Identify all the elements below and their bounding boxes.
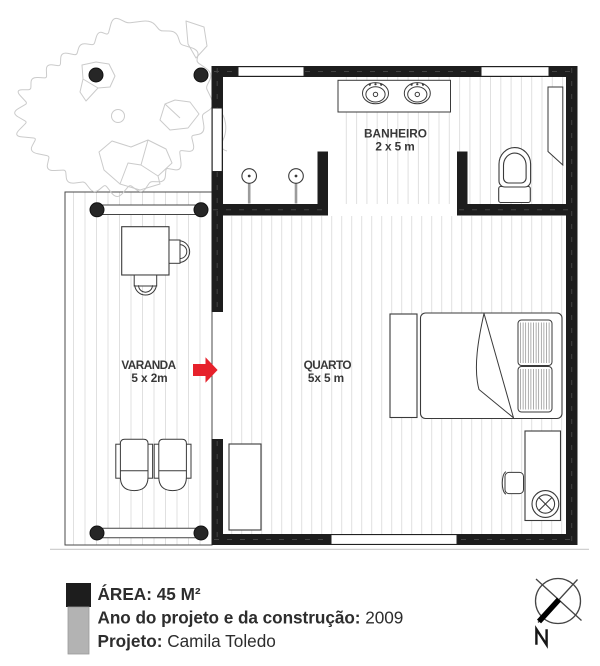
svg-text:BANHEIRO: BANHEIRO xyxy=(364,127,427,141)
svg-text:Ano do projeto e da construção: Ano do projeto e da construção: 2009 xyxy=(98,608,404,628)
svg-text:2 x 5 m: 2 x 5 m xyxy=(375,140,414,154)
svg-text:QUARTO: QUARTO xyxy=(304,358,352,372)
svg-text:5 x 2m: 5 x 2m xyxy=(131,371,167,385)
svg-text:Projeto: Camila Toledo: Projeto: Camila Toledo xyxy=(98,631,276,651)
svg-text:VARANDA: VARANDA xyxy=(121,358,176,372)
svg-text:5x 5 m: 5x 5 m xyxy=(308,371,344,385)
svg-text:ÁREA: 45 M²: ÁREA: 45 M² xyxy=(98,584,201,604)
